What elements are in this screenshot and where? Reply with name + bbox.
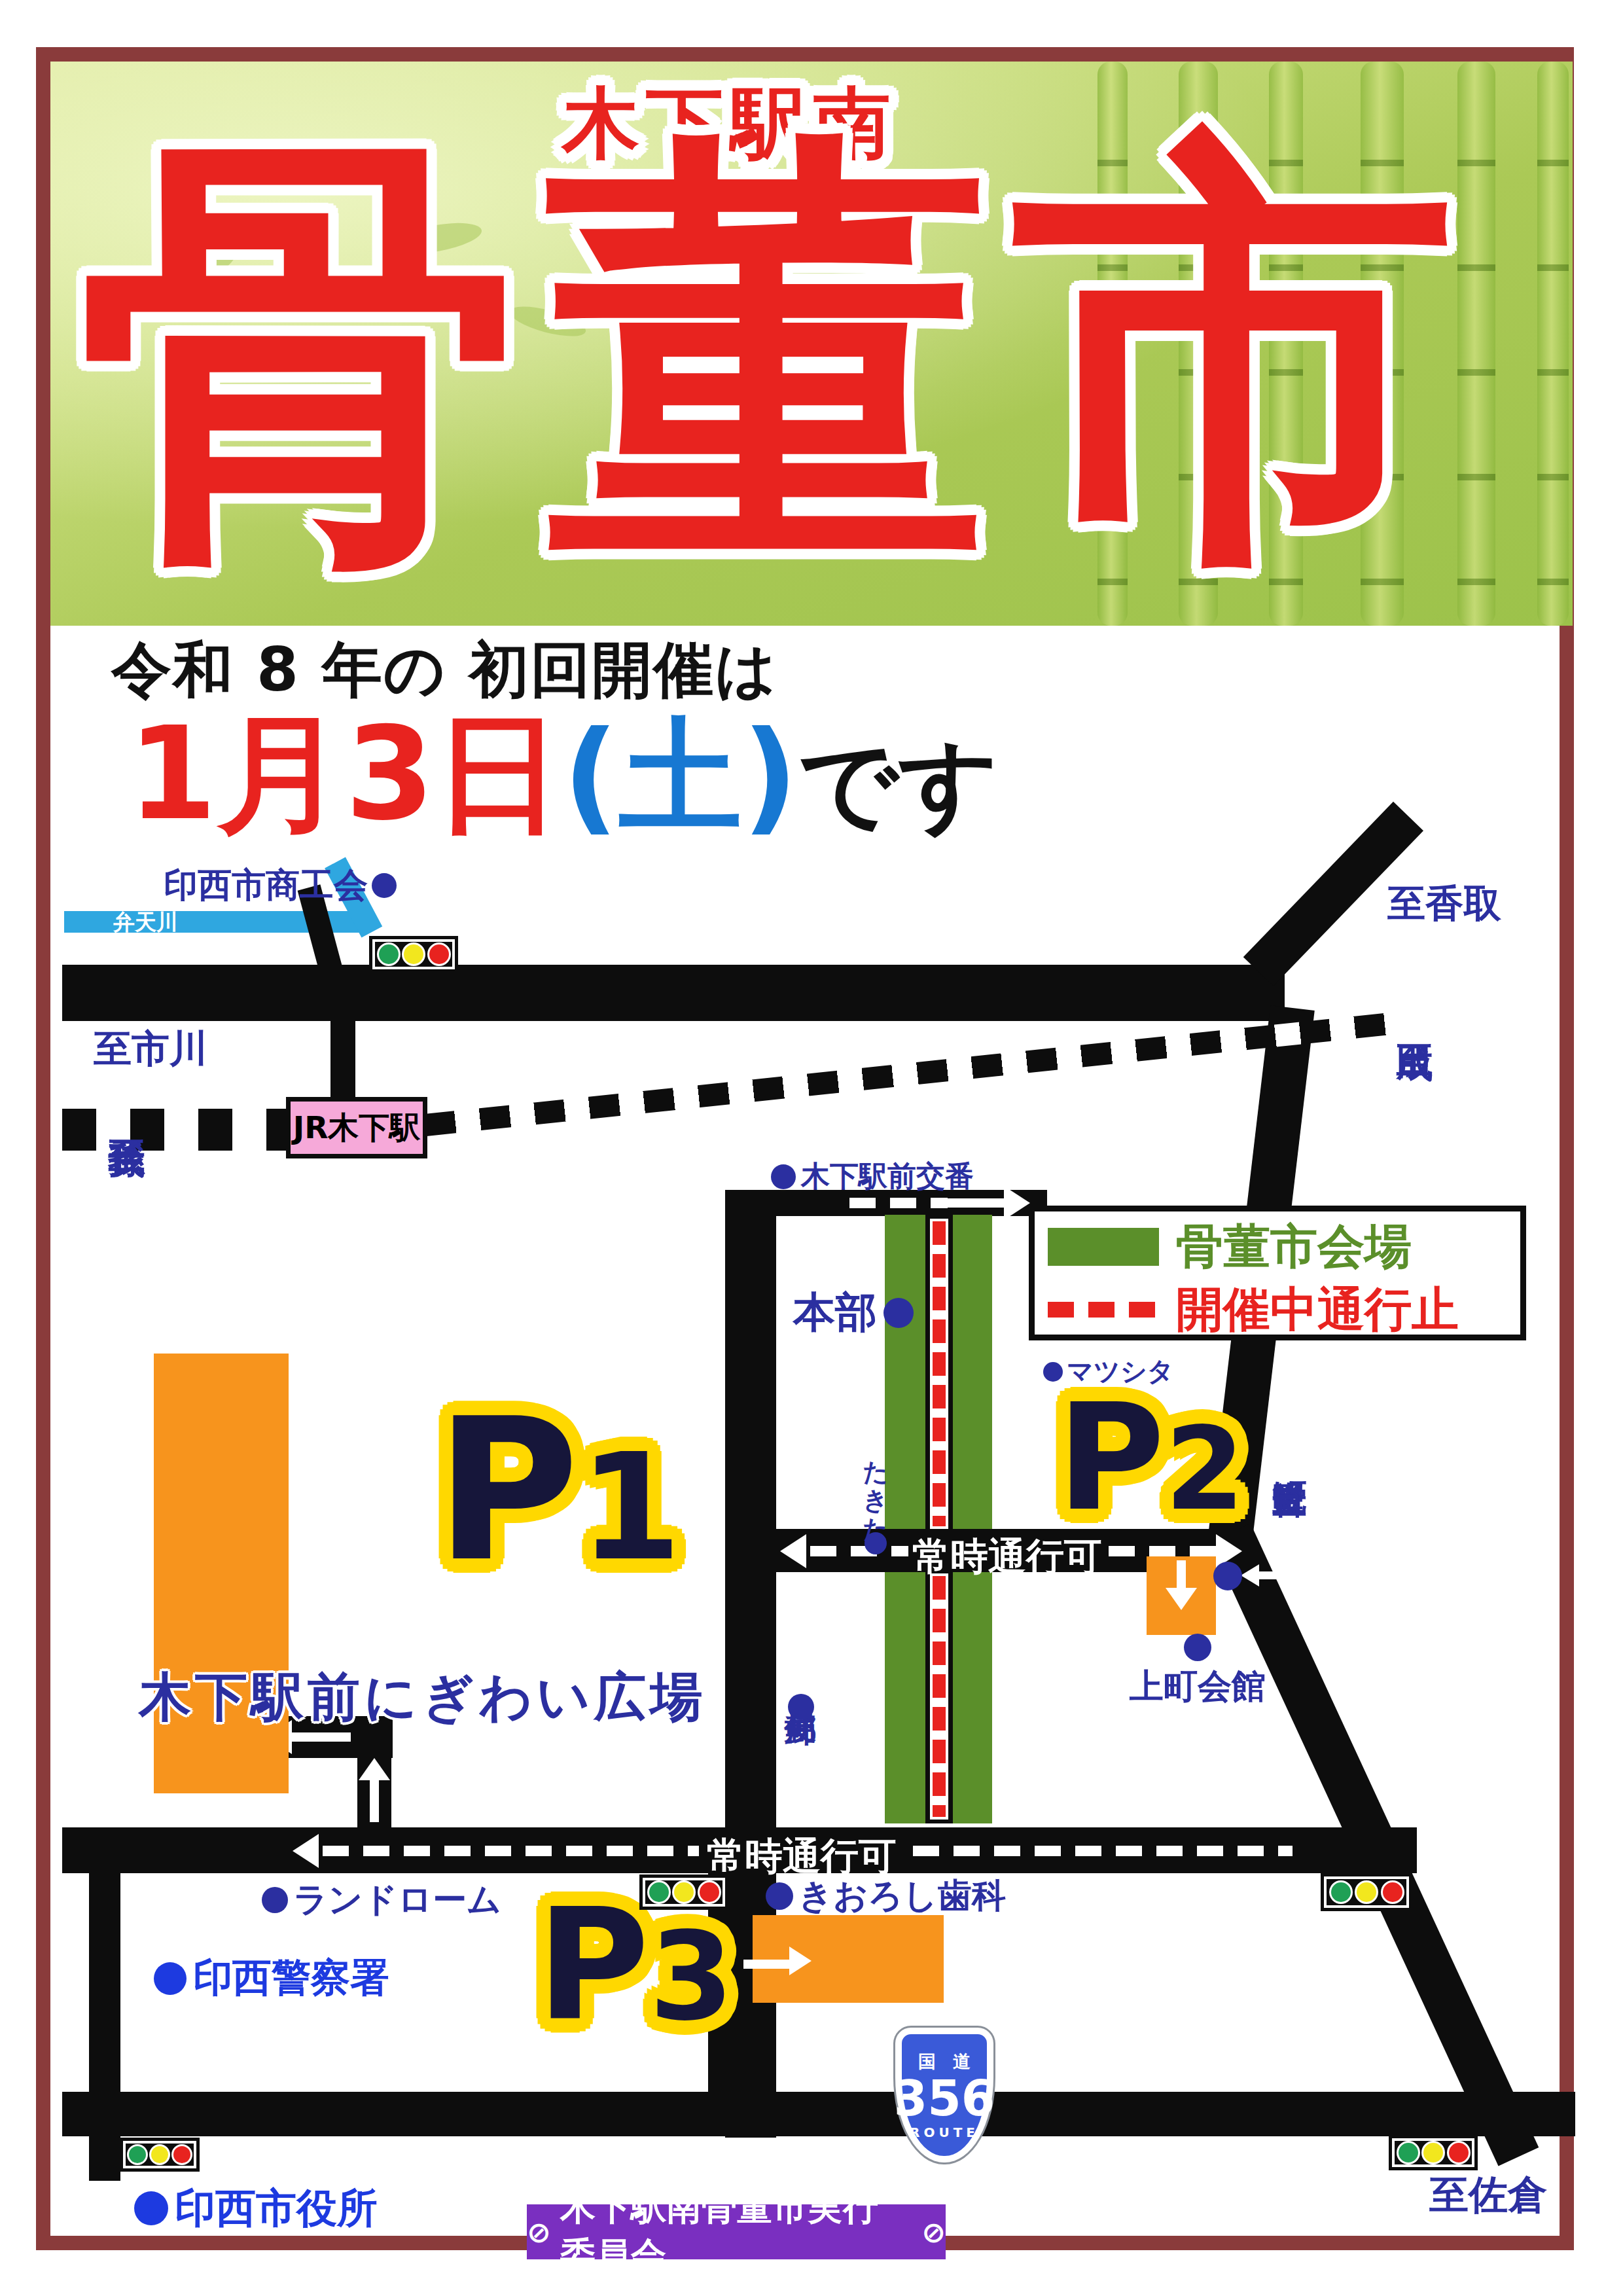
- label-dental: きおろし歯科: [766, 1873, 1006, 1919]
- label-headquarters: 本部: [793, 1284, 914, 1341]
- arrow-shaft: [370, 1779, 379, 1822]
- location-dot: [134, 2191, 168, 2225]
- road-bottom-horizontal: [62, 2092, 1575, 2136]
- arrow-left-icon: [780, 1534, 806, 1568]
- legend-box: 骨董市会場 開催中通行止: [1029, 1206, 1526, 1340]
- venue-strip-east: [953, 1215, 992, 1823]
- p1-letter: P: [435, 1376, 579, 1605]
- red-light: [1381, 1880, 1404, 1904]
- legend-venue-label: 骨董市会場: [1176, 1215, 1412, 1278]
- kaikan-text: 上町会館: [1130, 1664, 1266, 1710]
- arrow-right-icon: [789, 1946, 811, 1975]
- traffic-light-icon: [1321, 1873, 1412, 1911]
- matsushita-text: マツシタ: [1067, 1354, 1174, 1390]
- chamber-text: 印西市商工会: [164, 863, 368, 908]
- location-dot: [771, 1164, 796, 1189]
- p2-letter: P: [1057, 1372, 1165, 1543]
- green-light: [1397, 2141, 1420, 2164]
- station-sign: JR木下駅: [286, 1097, 427, 1158]
- arrow-shaft: [291, 1732, 351, 1742]
- arrow-left-icon: [293, 1834, 319, 1868]
- yellow-light: [402, 942, 425, 966]
- label-p1-plaza-name: 木下駅前にぎわい広場: [139, 1662, 707, 1733]
- location-dot: [865, 1532, 887, 1554]
- road-p1-access-vertical: [357, 1755, 391, 1831]
- label-matsushita: マツシタ: [1043, 1354, 1174, 1390]
- p3-letter: P: [537, 1876, 649, 2054]
- arrow-shaft: [743, 1960, 792, 1969]
- yellow-light: [1421, 2141, 1445, 2164]
- police-text: 印西警察署: [193, 1952, 389, 2005]
- red-light: [1447, 2141, 1471, 2164]
- label-city-hall: 印西市役所: [134, 2181, 378, 2236]
- event-weekday: (土): [563, 704, 798, 847]
- road-dash-line: [1109, 1546, 1217, 1556]
- p2-number: 2: [1165, 1403, 1245, 1535]
- road-lower-cross: 常時通行可: [62, 1827, 1417, 1873]
- arrow-shaft: [945, 1198, 1005, 1208]
- footer-committee-text: 木下駅南骨董市実行委員会: [560, 2184, 912, 2280]
- header-main-title: 骨董市: [59, 136, 1499, 572]
- p3-label: P3: [537, 1888, 734, 2042]
- yellow-light: [149, 2144, 170, 2165]
- announcement-date-line: 1月3日(土)です: [128, 689, 999, 862]
- event-date: 1月3日: [128, 699, 563, 848]
- closed-road-dash-lower: [930, 1573, 948, 1820]
- p2-label: P2: [1057, 1384, 1245, 1532]
- label-to-sakura: 至佐倉: [1429, 2169, 1547, 2222]
- landrome-text: ランドローム: [293, 1877, 501, 1923]
- poster-page: 木下駅南 骨董市 令和 8 年の 初回開催は 1月3日(土)です 弁天川 常時通…: [0, 0, 1623, 2296]
- label-to-ichikawa: 至市川: [94, 1024, 207, 1075]
- label-kaikan: 上町会館: [1130, 1634, 1266, 1710]
- green-light: [377, 942, 401, 966]
- legend-closed-row: 開催中通行止: [1048, 1278, 1507, 1341]
- label-to-katori: 至香取: [1387, 878, 1501, 929]
- red-light: [698, 1880, 721, 1904]
- location-dot: [766, 1882, 793, 1910]
- road-top-horizontal: [62, 965, 1285, 1021]
- railway-west: [62, 1109, 291, 1151]
- location-dot: [1213, 1562, 1242, 1590]
- arrow-right-icon: [1004, 1186, 1030, 1220]
- closed-road-dash-upper: [930, 1219, 948, 1529]
- green-light: [1329, 1880, 1353, 1904]
- location-dot: [154, 1962, 187, 1995]
- legend-venue-row: 骨董市会場: [1048, 1215, 1507, 1278]
- location-dot: [372, 873, 397, 898]
- label-koban: 木下駅前交番: [771, 1157, 974, 1196]
- location-dot: [262, 1887, 288, 1913]
- yellow-light: [672, 1880, 696, 1904]
- road-station-stub: [330, 1019, 355, 1104]
- red-light: [427, 942, 451, 966]
- road-dash-line: [849, 1198, 948, 1208]
- p3-parking-area: [753, 1915, 944, 2003]
- arrow-shaft: [1177, 1560, 1186, 1589]
- road-dash-line: [323, 1846, 699, 1856]
- legend-closed-label: 開催中通行止: [1176, 1278, 1459, 1341]
- venue-swatch-icon: [1048, 1228, 1159, 1266]
- city-hall-text: 印西市役所: [175, 2181, 378, 2236]
- p1-label: P1: [435, 1393, 681, 1589]
- traffic-light-icon: [369, 936, 458, 973]
- green-light: [127, 2144, 148, 2165]
- p1-number: 1: [579, 1422, 682, 1593]
- traffic-light-icon: [120, 2138, 200, 2172]
- green-light: [647, 1880, 671, 1904]
- road-dash-line: [913, 1846, 1293, 1856]
- location-dot: [788, 1694, 814, 1720]
- route-number: 356: [894, 2073, 995, 2125]
- yellow-light: [1355, 1880, 1378, 1904]
- traffic-light-icon: [639, 1874, 728, 1910]
- arrow-left-icon: [1241, 1564, 1259, 1587]
- road-bottom-left-vertical: [89, 1872, 120, 2181]
- arrow-down-icon: [1166, 1588, 1197, 1610]
- p2-parking-area: [1147, 1556, 1216, 1635]
- headquarters-text: 本部: [793, 1284, 877, 1341]
- route-word: ROUTE: [910, 2125, 979, 2140]
- label-landrome: ランドローム: [262, 1877, 501, 1923]
- takita-text: たきた: [859, 1443, 892, 1528]
- traffic-light-icon: [1389, 2135, 1478, 2170]
- closed-dash-icon: [1048, 1302, 1159, 1318]
- location-dot: [1184, 1634, 1211, 1661]
- red-light: [171, 2144, 192, 2165]
- label-takita: たきた: [859, 1443, 892, 1554]
- arrow-shaft: [1258, 1571, 1288, 1579]
- bamboo-stalk-icon: [1537, 62, 1569, 626]
- label-police: 印西警察署: [154, 1952, 389, 2005]
- arrow-up-icon: [359, 1758, 390, 1780]
- footer-ribbon: ⊘ 木下駅南骨董市実行委員会 ⊘: [527, 2204, 946, 2259]
- p3-number: 3: [649, 1906, 734, 2047]
- dental-text: きおろし歯科: [798, 1873, 1006, 1919]
- label-chamber: 印西市商工会: [164, 863, 397, 908]
- label-post-office: 郵便局: [780, 1689, 822, 1720]
- location-dot: [1043, 1362, 1063, 1382]
- footer-symbol-icon: ⊘: [921, 2215, 946, 2249]
- koban-text: 木下駅前交番: [801, 1157, 974, 1196]
- footer-symbol-icon: ⊘: [527, 2215, 551, 2249]
- location-dot: [883, 1298, 914, 1328]
- date-suffix: です: [798, 727, 999, 841]
